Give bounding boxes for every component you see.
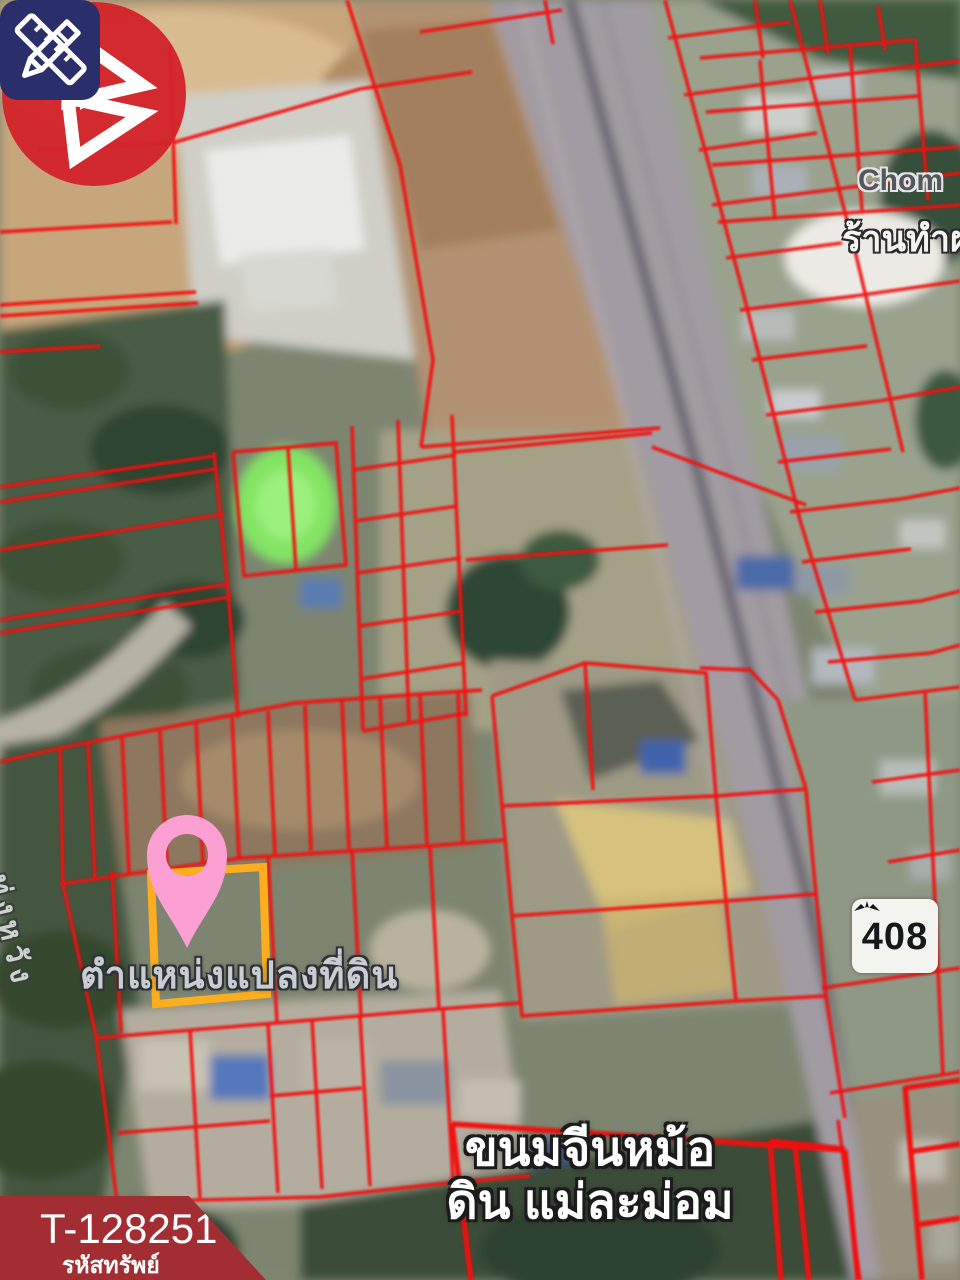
restaurant-poi-label: ขนมจีนหม้อ ดิน แม่ละม่อม xyxy=(398,1124,782,1230)
route-shield-crest-icon xyxy=(852,899,882,913)
restaurant-label-line2: ดิน แม่ละม่อม xyxy=(398,1177,782,1230)
parcel-location-label: ตำแหน่งแปลงที่ดิน xyxy=(80,944,398,1005)
place-name-thai: ร้านทำผ xyxy=(842,210,960,267)
route-number: 408 xyxy=(862,918,928,956)
restaurant-label-line1: ขนมจีนหม้อ xyxy=(398,1124,782,1177)
satellite-map xyxy=(0,0,960,1280)
satellite-map-listing-image: ทุ่งหวัง ตำแหน่งแปลงที่ดิน Chom ร้านทำผ … xyxy=(0,0,960,1280)
place-name-latin: Chom xyxy=(858,164,943,198)
property-code-caption: รหัสทรัพย์ xyxy=(62,1254,266,1277)
route-shield-408: 408 xyxy=(852,899,938,973)
pencil-ruler-icon xyxy=(0,0,100,100)
